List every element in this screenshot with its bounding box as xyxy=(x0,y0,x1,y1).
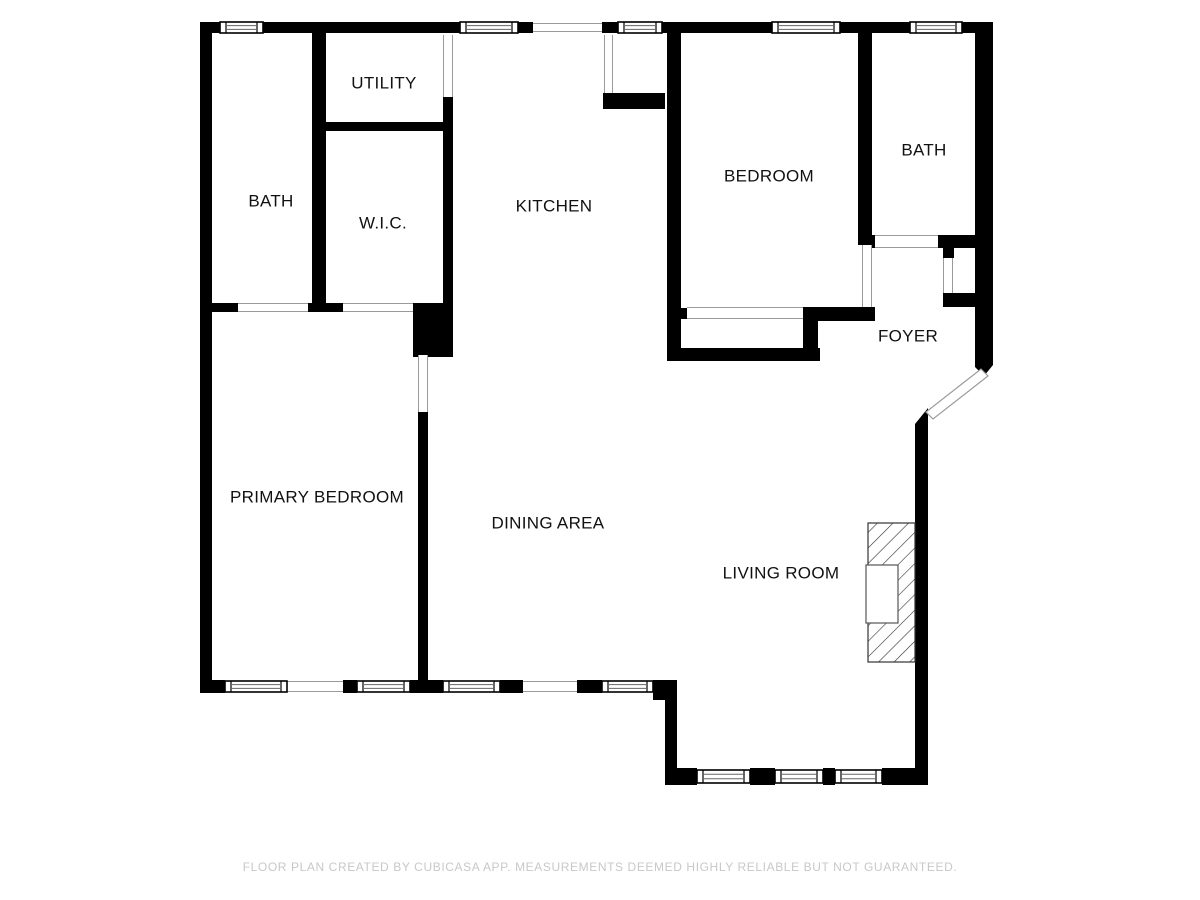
wall-segment xyxy=(518,22,533,33)
window xyxy=(772,22,840,33)
wall-segment xyxy=(312,33,326,303)
wall-segment xyxy=(665,768,697,785)
wall-segment xyxy=(418,412,428,680)
wall-segment xyxy=(662,22,772,33)
room-label-wic: W.I.C. xyxy=(359,213,407,232)
wall-segment xyxy=(200,33,212,693)
entry-door-layer xyxy=(926,369,988,419)
room-label-foyer: FOYER xyxy=(878,326,938,345)
floor-plan: UTILITYBATHW.I.C.KITCHENBEDROOMBATHFOYER… xyxy=(0,0,1200,900)
window xyxy=(835,770,882,783)
window xyxy=(443,681,500,692)
door-opening xyxy=(875,235,938,248)
door-opening xyxy=(943,258,953,293)
window xyxy=(697,770,750,783)
wall-segment xyxy=(750,768,775,785)
window xyxy=(602,681,653,692)
wall-segment xyxy=(915,424,928,785)
wall-segment xyxy=(200,22,220,33)
wall-segment xyxy=(577,680,602,693)
wall-segment xyxy=(326,122,443,131)
wall-segment xyxy=(667,348,820,361)
room-label-living-room: LIVING ROOM xyxy=(723,563,840,582)
wall-segment xyxy=(962,22,993,33)
wall-segment xyxy=(943,293,993,307)
walls-layer xyxy=(200,22,993,785)
door-opening xyxy=(533,23,602,32)
door-opening xyxy=(687,307,803,319)
wall-segment xyxy=(943,246,954,258)
window xyxy=(460,22,518,33)
wall-segment xyxy=(263,22,460,33)
wall-segment xyxy=(200,680,225,693)
wall-segment xyxy=(858,33,872,245)
windows-layer xyxy=(220,22,962,783)
entry-door-leaf xyxy=(926,369,988,419)
wall-segment xyxy=(677,308,687,319)
wall-segment xyxy=(413,303,453,357)
window xyxy=(910,22,962,33)
room-label-kitchen: KITCHEN xyxy=(516,196,593,215)
wall-segment xyxy=(410,680,443,693)
wall-segment xyxy=(308,303,343,312)
door-opening xyxy=(523,681,577,692)
wall-segment xyxy=(823,768,835,785)
room-label-dining-area: DINING AREA xyxy=(492,513,605,532)
room-labels-layer: UTILITYBATHW.I.C.KITCHENBEDROOMBATHFOYER… xyxy=(230,73,947,582)
room-label-utility: UTILITY xyxy=(351,73,416,92)
wall-segment xyxy=(603,93,665,109)
wall-segment xyxy=(343,680,357,693)
wall-segment xyxy=(803,307,875,321)
door-opening xyxy=(604,35,613,93)
room-label-bedroom: BEDROOM xyxy=(724,166,814,185)
wall-segment xyxy=(665,680,677,780)
door-opening xyxy=(287,681,343,692)
fireplace-layer xyxy=(866,523,915,662)
wall-segment xyxy=(602,22,618,33)
door-opening xyxy=(343,303,413,312)
door-opening xyxy=(418,355,428,412)
door-opening xyxy=(238,303,308,312)
wall-segment xyxy=(915,408,928,424)
wall-segment xyxy=(212,303,238,312)
wall-segment xyxy=(443,97,453,303)
window xyxy=(775,770,823,783)
room-label-bath-left: BATH xyxy=(248,191,293,210)
window xyxy=(225,681,287,692)
door-opening xyxy=(443,35,453,97)
footer-disclaimer: FLOOR PLAN CREATED BY CUBICASA APP. MEAS… xyxy=(0,860,1200,874)
room-label-primary-bedroom: PRIMARY BEDROOM xyxy=(230,487,404,506)
window xyxy=(357,681,410,692)
room-label-bath-right: BATH xyxy=(901,140,946,159)
wall-segment xyxy=(975,33,993,358)
wall-segment xyxy=(500,680,523,693)
door-opening xyxy=(862,245,872,307)
fireplace-firebox xyxy=(866,565,898,623)
wall-segment xyxy=(840,22,910,33)
